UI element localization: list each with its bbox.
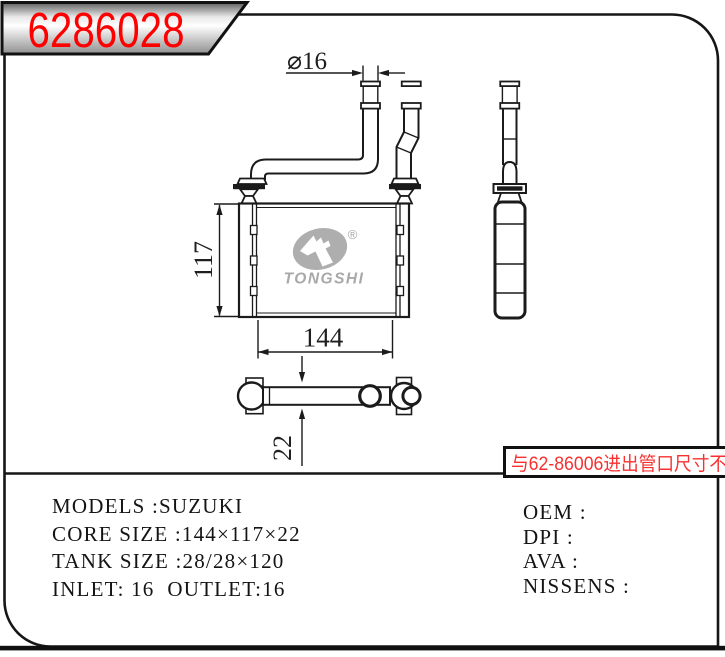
side-view	[494, 82, 527, 319]
spec-dpi: DPI :	[523, 525, 630, 550]
spec-list-right: OEM : DPI : AVA : NISSENS :	[523, 500, 630, 598]
spec-ava: AVA :	[523, 549, 630, 574]
watermark-brand-text: TONGSHI	[284, 271, 365, 288]
spec-inlet-outlet: INLET: 16 OUTLET:16	[52, 576, 301, 604]
spec-oem: OEM :	[523, 500, 630, 525]
bottom-edge-line	[0, 646, 725, 651]
spec-models: MODELS :SUZUKI	[52, 493, 301, 521]
note-text: 与62-86006进出管口尺寸不同	[511, 449, 725, 476]
note-box: 与62-86006进出管口尺寸不同	[503, 446, 725, 478]
spec-nissens: NISSENS :	[523, 574, 630, 599]
pipe-fittings	[233, 179, 421, 204]
catalog-page: ® TONGSHI ⌀16 117 144 22 6286028 与62-860…	[0, 0, 725, 657]
outlet-pipe	[397, 82, 421, 180]
port-circle	[403, 387, 420, 404]
width-dimension-label: 144	[303, 323, 344, 353]
diameter-dimension-label: ⌀16	[287, 48, 327, 75]
part-number-banner: 6286028	[2, 3, 247, 59]
spec-core-size: CORE SIZE :144×117×22	[52, 521, 301, 549]
watermark-registered-mark: ®	[348, 227, 358, 242]
spec-tank-size: TANK SIZE :28/28×120	[52, 548, 301, 576]
bottom-view	[238, 378, 420, 415]
part-number-text: 6286028	[28, 4, 185, 58]
height-dimension-label: 117	[189, 241, 218, 279]
depth-dimension-label: 22	[268, 435, 297, 461]
inlet-pipe	[251, 82, 380, 180]
depth-dimension	[299, 356, 305, 466]
spec-list-left: MODELS :SUZUKI CORE SIZE :144×117×22 TAN…	[52, 493, 301, 603]
port-circle	[360, 386, 381, 407]
